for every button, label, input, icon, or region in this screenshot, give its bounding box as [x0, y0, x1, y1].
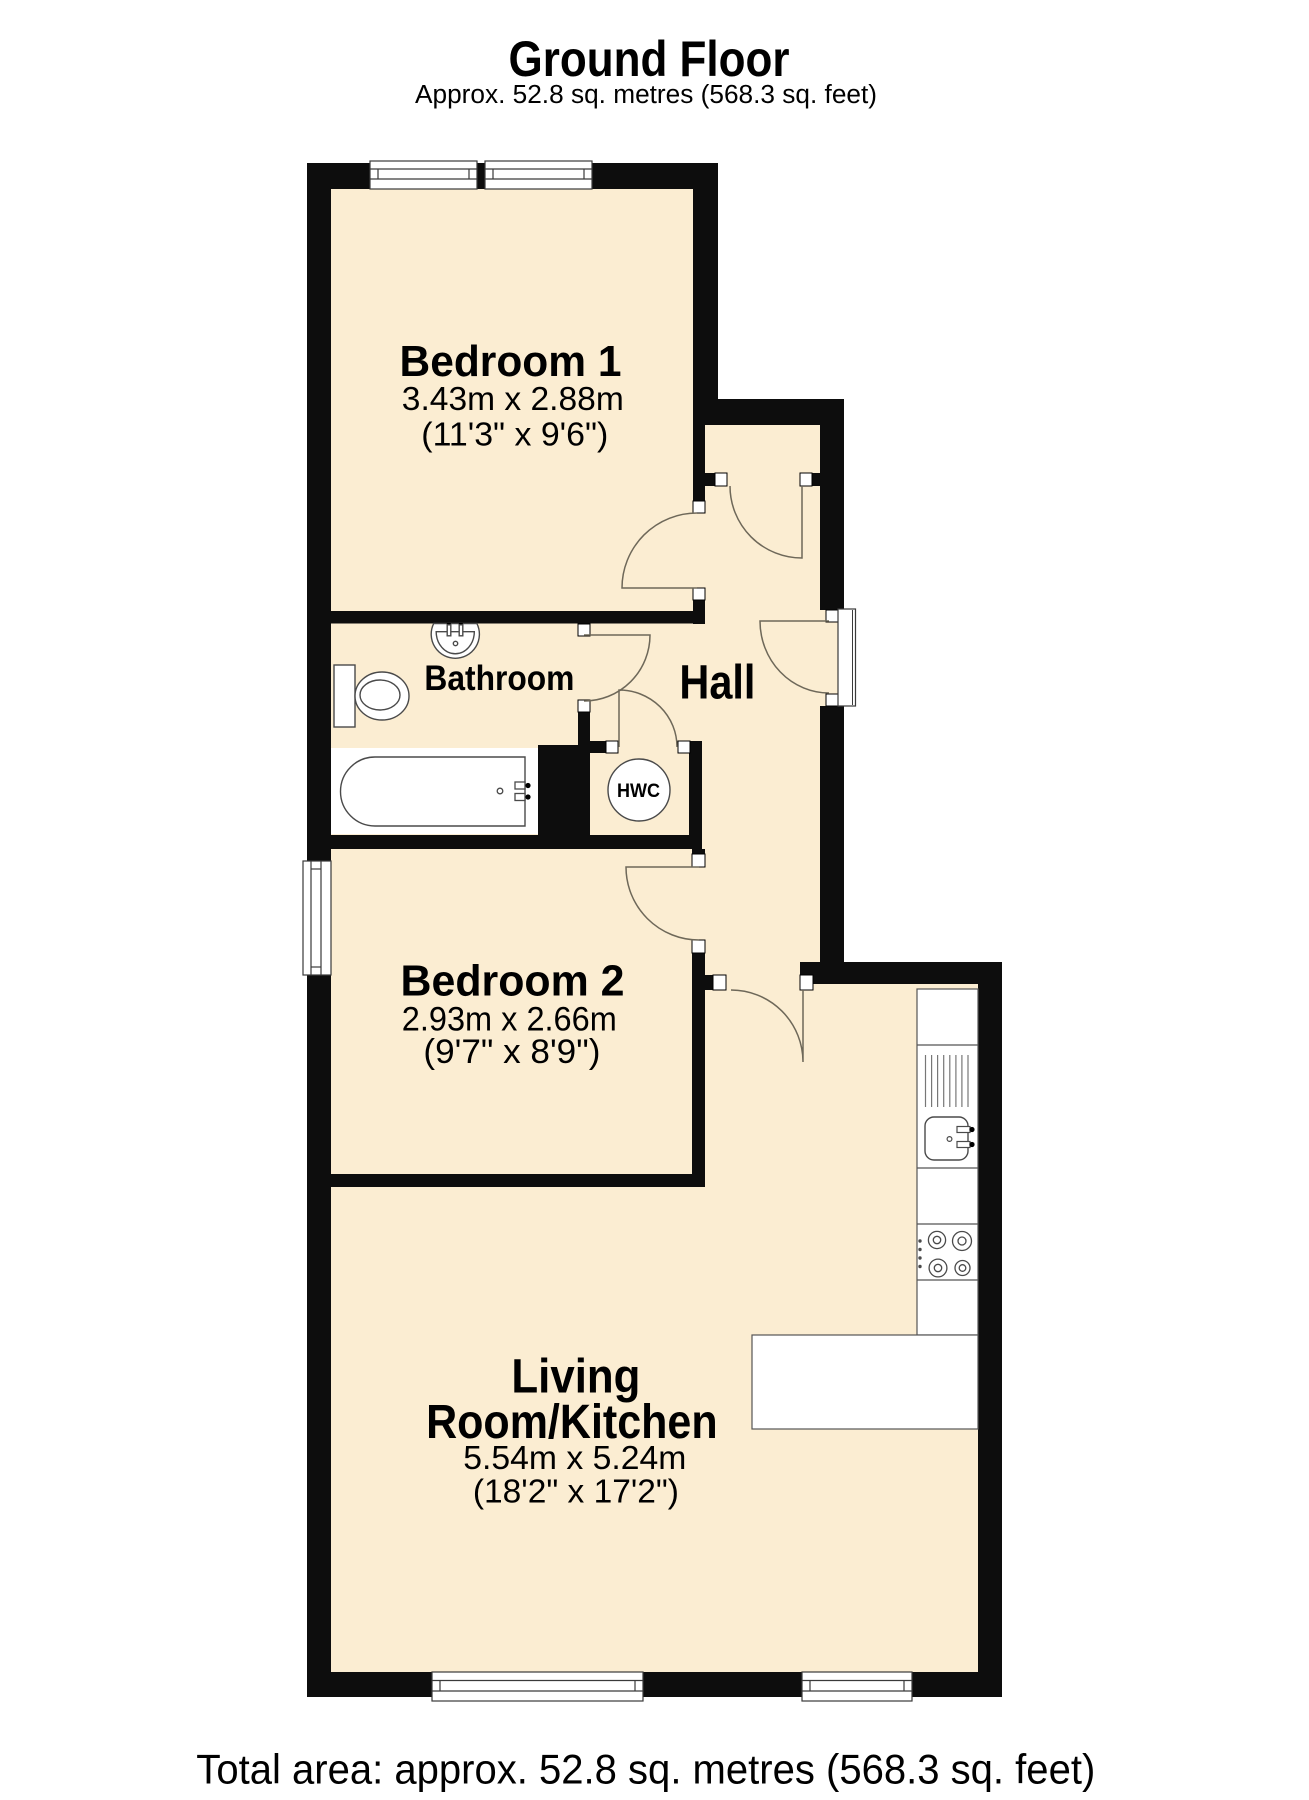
svg-text:(9'7" x 8'9"): (9'7" x 8'9") [423, 1033, 600, 1071]
svg-text:Approx. 52.8 sq. metres (568.3: Approx. 52.8 sq. metres (568.3 sq. feet) [415, 79, 877, 109]
svg-text:Total area: approx. 52.8 sq. m: Total area: approx. 52.8 sq. metres (568… [196, 1746, 1095, 1793]
svg-text:HWC: HWC [617, 780, 660, 802]
svg-text:(18'2" x 17'2"): (18'2" x 17'2") [473, 1474, 679, 1511]
svg-text:Hall: Hall [679, 657, 755, 710]
svg-text:Bedroom 2: Bedroom 2 [401, 957, 625, 1006]
svg-text:Bathroom: Bathroom [424, 659, 574, 698]
svg-text:(11'3" x 9'6"): (11'3" x 9'6") [421, 417, 608, 454]
svg-text:Bedroom 1: Bedroom 1 [400, 338, 622, 386]
svg-text:5.54m x 5.24m: 5.54m x 5.24m [463, 1440, 686, 1477]
svg-text:3.43m x 2.88m: 3.43m x 2.88m [402, 381, 624, 418]
